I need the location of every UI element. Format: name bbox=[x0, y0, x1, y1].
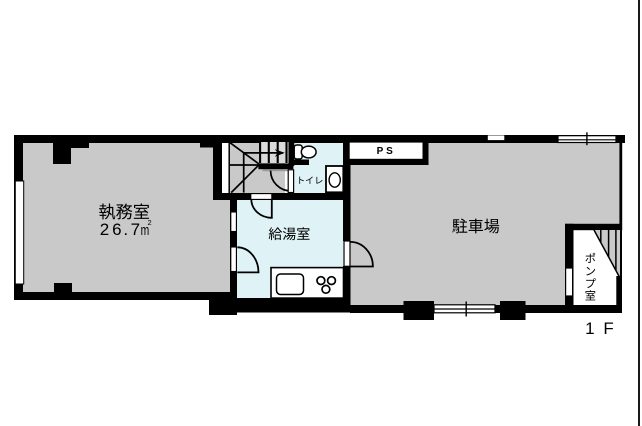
svg-text:F: F bbox=[603, 319, 613, 338]
svg-text:1: 1 bbox=[585, 319, 594, 338]
svg-text:P: P bbox=[377, 146, 384, 157]
svg-text:7: 7 bbox=[131, 220, 140, 239]
svg-text:2: 2 bbox=[148, 218, 152, 227]
svg-text:S: S bbox=[386, 146, 393, 157]
svg-text:2: 2 bbox=[100, 220, 109, 239]
svg-text:6: 6 bbox=[112, 220, 121, 239]
svg-text:.: . bbox=[123, 220, 128, 239]
